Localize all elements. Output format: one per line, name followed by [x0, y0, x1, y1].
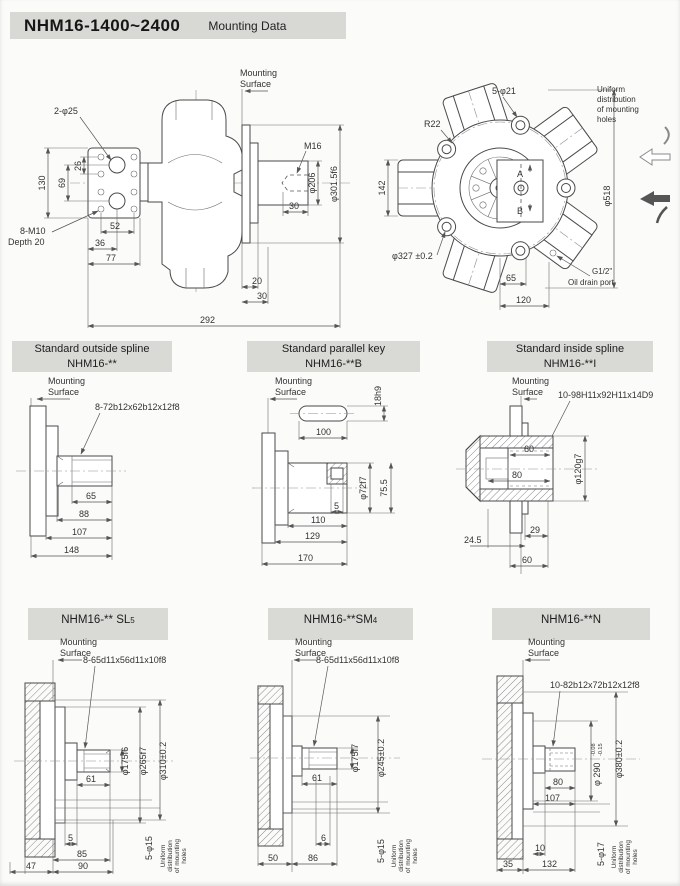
dim-85: 85: [77, 849, 87, 859]
port-a-label: A: [517, 169, 523, 179]
dim-69: 69: [57, 178, 67, 188]
rotation-arrows: [640, 127, 670, 223]
pilot-dia: φ265f7: [138, 747, 148, 775]
top-drawings: Mounting Surface 130 69 26 2-φ25 8-M10 D…: [0, 44, 680, 338]
svg-text:holes: holes: [412, 847, 419, 863]
outer-dia: φ518: [602, 186, 612, 207]
spigot-dia: φ 290 -0.08 -0.15: [591, 743, 604, 786]
svg-text:Surface: Surface: [528, 648, 559, 658]
shaft-dia: φ206: [307, 173, 317, 194]
spline-spec: 8-72b12x62b12x12f8: [95, 402, 180, 412]
svg-text:holes: holes: [632, 848, 639, 864]
dim-86: 86: [308, 853, 318, 863]
thread-depth: Depth 20: [8, 237, 45, 247]
dim-132: 132: [542, 859, 557, 869]
dim-90: 90: [78, 861, 88, 871]
drain-label: Oil drain port: [568, 278, 615, 287]
svg-text:Uniform: Uniform: [611, 846, 618, 869]
svg-text:of mounting: of mounting: [174, 839, 181, 873]
svg-text:distribution: distribution: [618, 841, 625, 873]
svg-text:Surface: Surface: [275, 387, 306, 397]
svg-text:-0.08: -0.08: [591, 743, 597, 756]
dim-80: 80: [553, 777, 563, 787]
bottom-drawings: Mounting Surface 8-65d11x56d11x10f8 61 φ…: [0, 636, 680, 886]
heading-inside-spline: Standard inside splineNHM16-**I: [487, 341, 653, 372]
svg-text:of mounting: of mounting: [625, 840, 632, 874]
dim-65: 65: [506, 273, 516, 283]
side-view: Mounting Surface 130 69 26 2-φ25 8-M10 D…: [8, 68, 352, 328]
mounting-surface-label: Mounting: [240, 68, 277, 78]
dim-75-5: 75.5: [379, 479, 389, 497]
dim-10: 10: [535, 843, 545, 853]
inside-spline-view: Mounting Surface 10-98H11x92H11x14D9 60: [456, 376, 653, 574]
dim-5: 5: [68, 833, 73, 843]
svg-text:Mounting: Mounting: [275, 376, 312, 386]
dim-30-thread: 30: [289, 201, 299, 211]
dim-60-depth: 60: [524, 444, 534, 454]
key-length: 100: [316, 427, 331, 437]
dim-61: 61: [312, 773, 322, 783]
bolt-holes-callout: 5-φ21: [492, 86, 516, 96]
dim-107: 107: [545, 793, 560, 803]
svg-text:Surface: Surface: [48, 387, 79, 397]
svg-text:Uniform: Uniform: [391, 845, 398, 868]
spline-spec: 8-65d11x56d11x10f8: [316, 655, 399, 665]
flange-holes-callout: 2-φ25: [54, 106, 78, 116]
sl5-view: Mounting Surface 8-65d11x56d11x10f8 61 φ…: [10, 637, 188, 874]
bolt-holes: 5-φ15: [376, 839, 386, 863]
model-number: NHM16-1400~2400: [10, 16, 180, 36]
dim-50: 50: [268, 853, 278, 863]
middle-drawings: Mounting Surface 8-72b12x62b12x12f8 65 8…: [0, 374, 680, 600]
svg-text:of mounting: of mounting: [405, 839, 412, 873]
dim-107: 107: [72, 527, 87, 537]
svg-text:Surface: Surface: [512, 387, 543, 397]
shaft-dia: φ175f7: [350, 744, 360, 772]
dim-60: 60: [522, 555, 532, 565]
dim-26: 26: [73, 161, 83, 171]
bolt-holes: 5-φ17: [596, 842, 606, 866]
heading-parallel-key: Standard parallel keyNHM16-**B: [247, 341, 420, 372]
bolt-circle: φ310±0.2: [158, 742, 168, 780]
dim-148: 148: [64, 545, 79, 555]
sheet-title: Mounting Data: [208, 19, 286, 33]
thread-callout: 8-M10: [20, 226, 46, 236]
spline-spec: 10-82b12x72b12x12f8: [550, 680, 640, 690]
radius-callout: R22: [424, 119, 441, 129]
mounting-surface-label: Surface: [240, 79, 271, 89]
svg-text:distribution: distribution: [167, 840, 174, 872]
dim-80-depth: 80: [512, 470, 522, 480]
dim-130: 130: [37, 175, 47, 190]
svg-text:holes: holes: [181, 847, 188, 863]
dim-47: 47: [26, 861, 36, 871]
shaft-dia: φ175f6: [120, 747, 130, 775]
dim-292: 292: [200, 315, 215, 325]
svg-text:φ 290: φ 290: [592, 763, 602, 786]
spline-spec: 8-65d11x56d11x10f8: [83, 655, 166, 665]
dim-35: 35: [503, 859, 513, 869]
svg-text:Mounting: Mounting: [512, 376, 549, 386]
dim-142: 142: [377, 180, 387, 195]
dim-61: 61: [86, 774, 96, 784]
parallel-key-view: Mounting Surface 100 18h9 φ72f7: [252, 376, 395, 566]
svg-text:Mounting: Mounting: [48, 376, 85, 386]
spline-spec: 10-98H11x92H11x14D9: [558, 390, 653, 400]
svg-text:distribution: distribution: [398, 840, 405, 872]
uniform-note: distribution: [597, 95, 636, 104]
dim-52: 52: [110, 221, 120, 231]
drawing-sheet: NHM16-1400~2400 Mounting Data: [0, 0, 680, 886]
svg-text:-0.15: -0.15: [598, 743, 604, 756]
port-block: A B: [497, 160, 543, 222]
svg-text:Mounting: Mounting: [60, 637, 97, 647]
uniform-note: Uniform: [597, 85, 625, 94]
dim-88: 88: [79, 509, 89, 519]
key-size: 18h9: [373, 386, 383, 406]
heading-outside-spline: Standard outside splineNHM16-**: [12, 341, 172, 372]
pilot-dia: φ301.5f6: [329, 166, 339, 202]
bolt-circle: φ245±0.2: [376, 739, 386, 777]
dim-110: 110: [311, 515, 325, 525]
dim-36: 36: [95, 238, 105, 248]
shaft-dia: φ72f7: [358, 476, 368, 499]
n-view: Mounting Surface 10-82b12x72b12x12f8 80 …: [482, 637, 640, 874]
dim-6: 6: [321, 833, 326, 843]
dim-77: 77: [106, 253, 116, 263]
port-b-label: B: [517, 206, 523, 216]
hub-dia: φ120g7: [573, 454, 583, 485]
drain-thread: G1/2": [592, 267, 612, 276]
uniform-note: holes: [597, 115, 616, 124]
shaft-thread-label: M16: [304, 141, 322, 151]
dim-129: 129: [305, 531, 320, 541]
dim-120: 120: [516, 295, 531, 305]
svg-text:Mounting: Mounting: [528, 637, 565, 647]
dim-65: 65: [86, 491, 96, 501]
bolt-holes: 5-φ15: [144, 836, 154, 860]
dim-30: 30: [257, 291, 267, 301]
svg-text:Mounting: Mounting: [295, 637, 332, 647]
bolt-circle-callout: φ327 ±0.2: [392, 251, 433, 261]
dim-170: 170: [298, 553, 313, 563]
svg-text:Uniform: Uniform: [160, 845, 167, 868]
title-bar: NHM16-1400~2400 Mounting Data: [10, 12, 346, 39]
dim-20: 20: [252, 276, 262, 286]
uniform-note: of mounting: [597, 105, 639, 114]
outside-spline-view: Mounting Surface 8-72b12x62b12x12f8 65 8…: [16, 376, 180, 560]
dim-29: 29: [530, 525, 540, 535]
sm4-view: Mounting Surface 8-65d11x56d11x10f8 61 φ…: [250, 637, 419, 873]
bolt-circle: φ380±0.2: [614, 740, 624, 778]
dim-5: 5: [334, 501, 339, 511]
dim-24-5: 24.5: [464, 535, 482, 545]
front-view: A B 142 φ518 5-φ21 Uniform distribution …: [377, 82, 670, 310]
